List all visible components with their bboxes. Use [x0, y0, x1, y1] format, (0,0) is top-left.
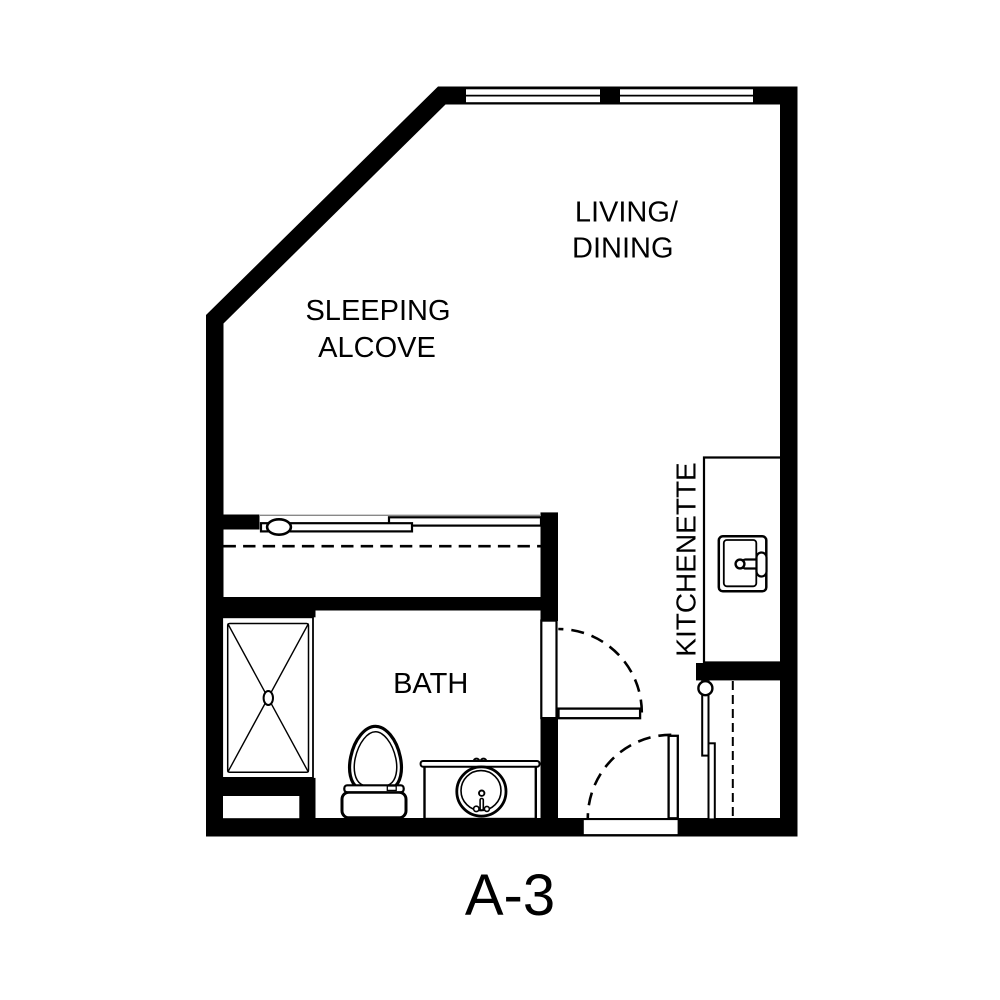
- svg-text:KITCHENETTE: KITCHENETTE: [671, 462, 702, 656]
- svg-text:A-3: A-3: [465, 863, 555, 928]
- svg-text:BATH: BATH: [393, 668, 468, 700]
- svg-text:ALCOVE: ALCOVE: [318, 332, 436, 364]
- svg-text:LIVING/: LIVING/: [575, 197, 679, 229]
- svg-text:SLEEPING: SLEEPING: [305, 295, 450, 327]
- svg-text:DINING: DINING: [572, 232, 674, 264]
